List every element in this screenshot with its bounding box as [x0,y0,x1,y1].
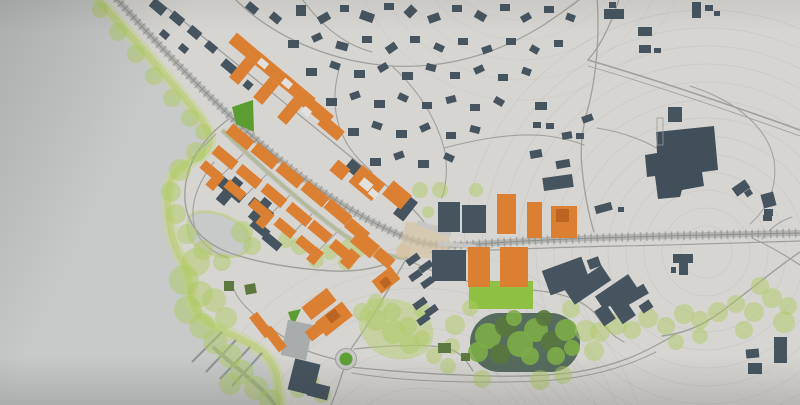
masterplan-svg [0,0,800,405]
roundabout [336,349,357,370]
masterplan-photo [0,0,800,405]
park-oval [468,310,580,372]
